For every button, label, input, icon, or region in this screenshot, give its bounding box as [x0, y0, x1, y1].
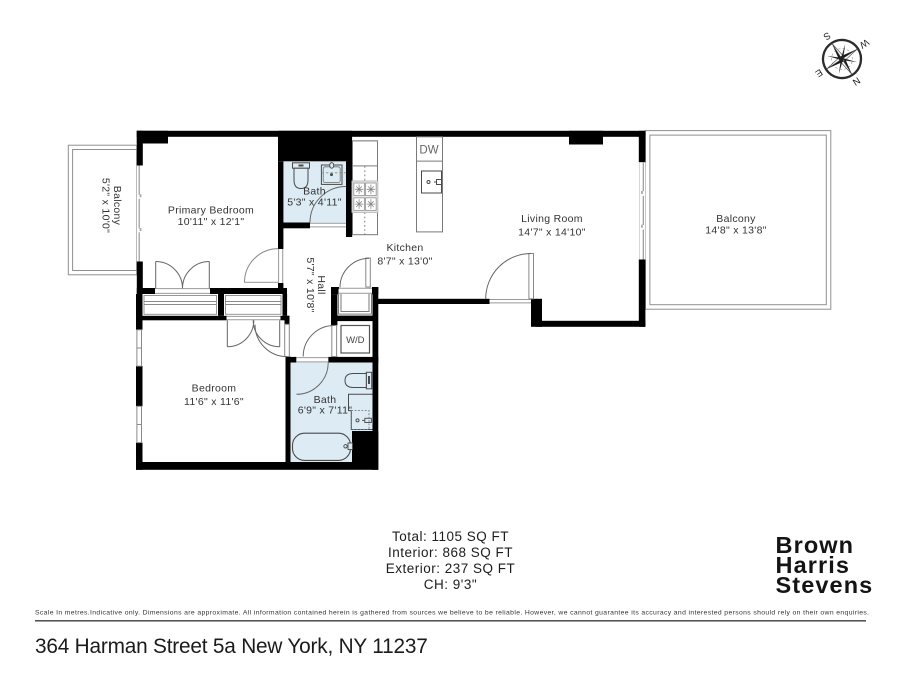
- svg-text:Bath: Bath: [303, 185, 326, 197]
- svg-text:364 Harman Street 5a New York,: 364 Harman Street 5a New York, NY 11237: [35, 635, 428, 658]
- svg-text:Hall: Hall: [315, 275, 327, 294]
- svg-text:Exterior: 237 SQ FT: Exterior: 237 SQ FT: [386, 561, 516, 576]
- svg-text:11'6" x 11'6": 11'6" x 11'6": [184, 396, 244, 408]
- svg-text:Interior: 868 SQ FT: Interior: 868 SQ FT: [388, 545, 513, 560]
- svg-text:Balcony: Balcony: [111, 186, 123, 226]
- svg-text:5'3" x 4'11": 5'3" x 4'11": [287, 197, 342, 209]
- svg-text:5'2" x 10'0": 5'2" x 10'0": [100, 178, 112, 233]
- svg-text:W/D: W/D: [346, 335, 365, 346]
- svg-text:8'7" x 13'0": 8'7" x 13'0": [377, 255, 432, 267]
- svg-text:Bedroom: Bedroom: [192, 383, 237, 395]
- svg-text:14'8" x 13'8": 14'8" x 13'8": [705, 225, 767, 237]
- svg-text:Stevens: Stevens: [776, 572, 874, 598]
- svg-text:Scale In metres.Indicative onl: Scale In metres.Indicative only. Dimensi…: [35, 610, 869, 617]
- svg-text:DW: DW: [419, 145, 438, 157]
- svg-text:5'7" x 10'8": 5'7" x 10'8": [304, 257, 316, 312]
- svg-text:10'11" x 12'1": 10'11" x 12'1": [178, 216, 245, 228]
- svg-text:6'9" x 7'11": 6'9" x 7'11": [298, 405, 353, 417]
- svg-text:Total: 1105 SQ FT: Total: 1105 SQ FT: [392, 529, 509, 544]
- svg-text:Primary Bedroom: Primary Bedroom: [168, 205, 254, 217]
- svg-text:Balcony: Balcony: [716, 213, 756, 225]
- svg-text:14'7" x 14'10": 14'7" x 14'10": [518, 226, 586, 238]
- svg-text:CH: 9'3": CH: 9'3": [424, 577, 477, 592]
- svg-text:Kitchen: Kitchen: [386, 242, 423, 254]
- svg-text:Living Room: Living Room: [521, 213, 583, 225]
